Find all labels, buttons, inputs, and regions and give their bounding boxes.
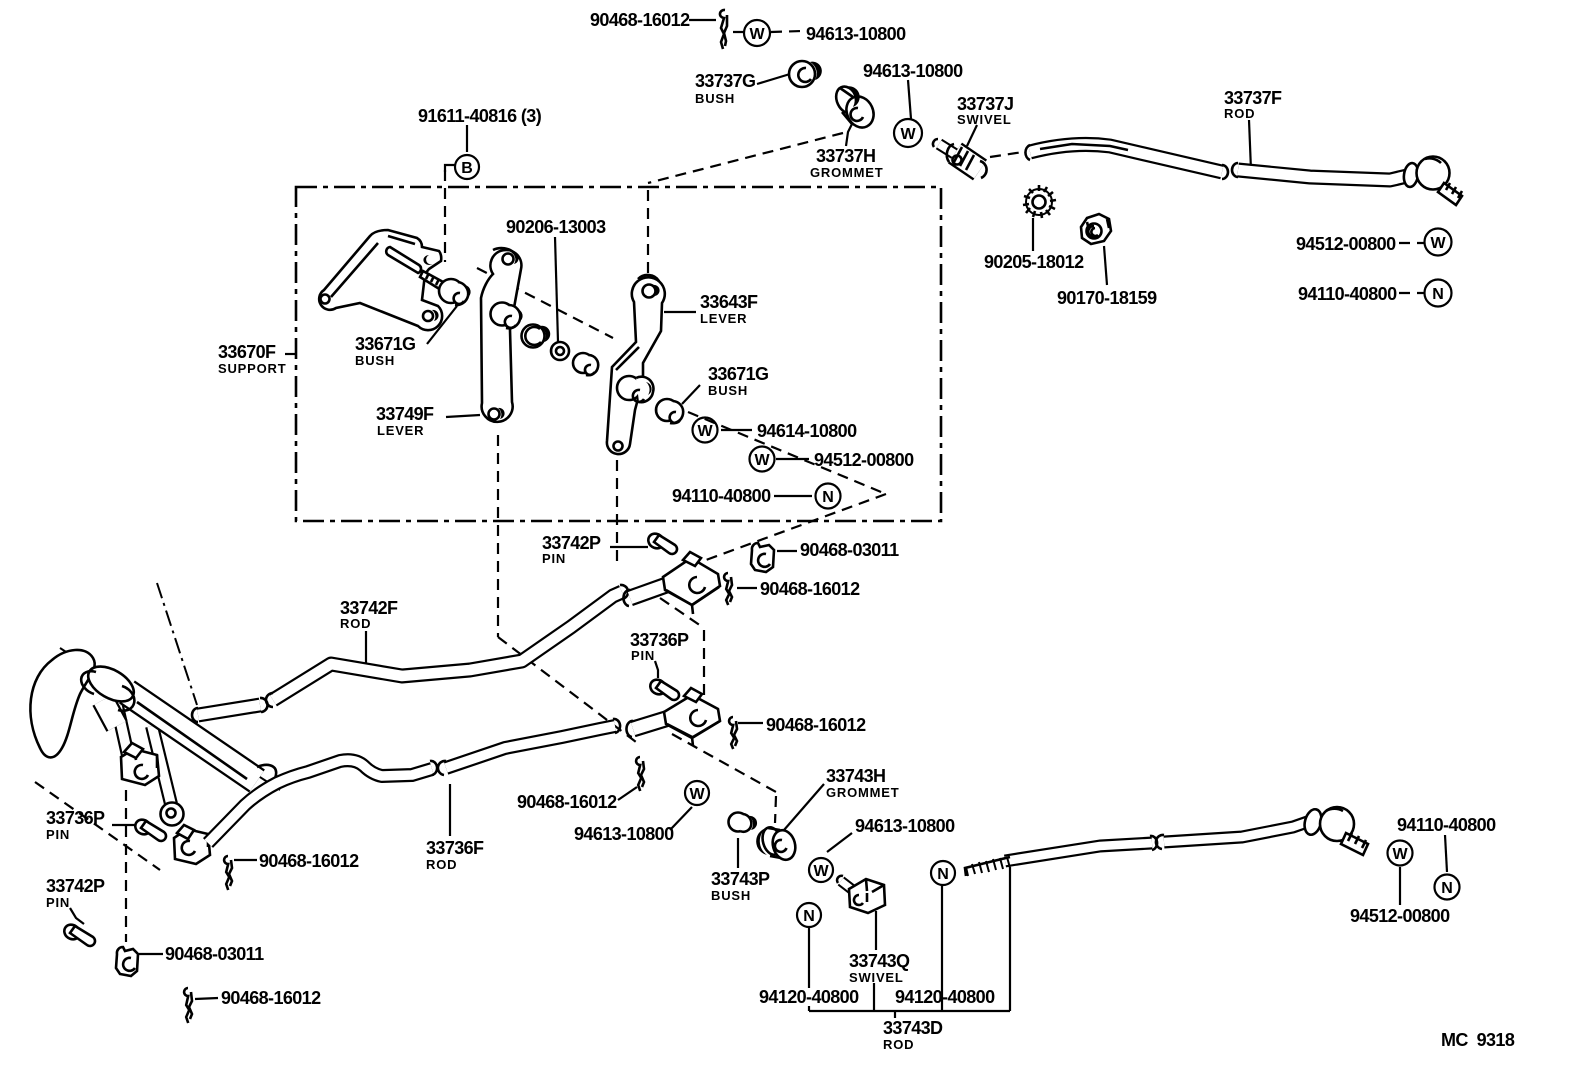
svg-text:PIN: PIN [631, 648, 655, 663]
svg-text:W: W [813, 863, 829, 880]
svg-text:94120-40800: 94120-40800 [895, 987, 995, 1007]
svg-text:GROMMET: GROMMET [826, 785, 899, 800]
svg-text:N: N [1432, 286, 1444, 303]
svg-text:90468-16012: 90468-16012 [760, 579, 860, 599]
svg-text:N: N [1441, 880, 1453, 897]
svg-text:33742P: 33742P [46, 876, 105, 896]
svg-text:94613-10800: 94613-10800 [863, 61, 963, 81]
svg-text:33743P: 33743P [711, 869, 770, 889]
svg-text:33643F: 33643F [700, 292, 758, 312]
svg-text:33736F: 33736F [426, 838, 484, 858]
svg-text:SWIVEL: SWIVEL [849, 970, 904, 985]
svg-text:94120-40800: 94120-40800 [759, 987, 859, 1007]
svg-text:ROD: ROD [1224, 106, 1255, 121]
svg-text:33671G: 33671G [355, 334, 415, 354]
svg-text:90468-16012: 90468-16012 [221, 988, 321, 1008]
svg-text:33743D: 33743D [883, 1018, 943, 1038]
svg-text:ROD: ROD [340, 616, 371, 631]
svg-text:LEVER: LEVER [377, 423, 424, 438]
svg-text:33743H: 33743H [826, 766, 885, 786]
svg-text:94110-40800: 94110-40800 [1298, 284, 1397, 304]
svg-text:GROMMET: GROMMET [810, 165, 883, 180]
svg-text:91611-40816 (3): 91611-40816 (3) [418, 106, 542, 126]
svg-text:BUSH: BUSH [708, 383, 748, 398]
svg-text:B: B [461, 160, 473, 177]
svg-text:94512-00800: 94512-00800 [1350, 906, 1450, 926]
svg-text:33737F: 33737F [1224, 88, 1282, 108]
svg-text:33671G: 33671G [708, 364, 768, 384]
svg-text:33737H: 33737H [816, 146, 875, 166]
svg-text:W: W [697, 423, 713, 440]
svg-text:33742F: 33742F [340, 598, 398, 618]
svg-text:SUPPORT: SUPPORT [218, 361, 286, 376]
svg-text:90206-13003: 90206-13003 [506, 217, 606, 237]
svg-text:94614-10800: 94614-10800 [757, 421, 857, 441]
svg-text:W: W [1430, 235, 1446, 252]
svg-text:90468-03011: 90468-03011 [165, 944, 264, 964]
svg-text:LEVER: LEVER [700, 311, 747, 326]
svg-text:W: W [900, 126, 916, 143]
svg-text:33736P: 33736P [630, 630, 689, 650]
svg-text:PIN: PIN [542, 551, 566, 566]
svg-text:94613-10800: 94613-10800 [574, 824, 674, 844]
svg-text:33737G: 33737G [695, 71, 755, 91]
svg-text:90468-16012: 90468-16012 [766, 715, 866, 735]
svg-text:90205-18012: 90205-18012 [984, 252, 1084, 272]
svg-text:ROD: ROD [883, 1037, 914, 1052]
svg-text:W: W [749, 26, 765, 43]
svg-text:MC 9318: MC 9318 [1441, 1030, 1515, 1050]
svg-text:33743Q: 33743Q [849, 951, 910, 971]
svg-text:90468-16012: 90468-16012 [259, 851, 359, 871]
svg-text:BUSH: BUSH [711, 888, 751, 903]
svg-text:W: W [689, 786, 705, 803]
svg-text:94110-40800: 94110-40800 [672, 486, 771, 506]
svg-text:BUSH: BUSH [695, 91, 735, 106]
svg-text:W: W [754, 452, 770, 469]
svg-text:33736P: 33736P [46, 808, 105, 828]
svg-text:33737J: 33737J [957, 94, 1013, 114]
svg-text:SWIVEL: SWIVEL [957, 112, 1012, 127]
svg-text:33742P: 33742P [542, 533, 601, 553]
svg-text:33670F: 33670F [218, 342, 276, 362]
svg-text:33749F: 33749F [376, 404, 434, 424]
svg-text:N: N [822, 489, 834, 506]
svg-text:PIN: PIN [46, 895, 70, 910]
svg-text:94613-10800: 94613-10800 [806, 24, 906, 44]
svg-text:ROD: ROD [426, 857, 457, 872]
svg-text:90170-18159: 90170-18159 [1057, 288, 1157, 308]
svg-text:94613-10800: 94613-10800 [855, 816, 955, 836]
svg-text:90468-16012: 90468-16012 [517, 792, 617, 812]
svg-text:W: W [1392, 846, 1408, 863]
svg-text:90468-03011: 90468-03011 [800, 540, 899, 560]
svg-text:N: N [803, 908, 815, 925]
svg-text:94512-00800: 94512-00800 [1296, 234, 1396, 254]
svg-text:PIN: PIN [46, 827, 70, 842]
svg-text:BUSH: BUSH [355, 353, 395, 368]
svg-text:90468-16012: 90468-16012 [590, 10, 690, 30]
svg-text:94110-40800: 94110-40800 [1397, 815, 1496, 835]
svg-text:N: N [937, 866, 949, 883]
svg-text:94512-00800: 94512-00800 [814, 450, 914, 470]
